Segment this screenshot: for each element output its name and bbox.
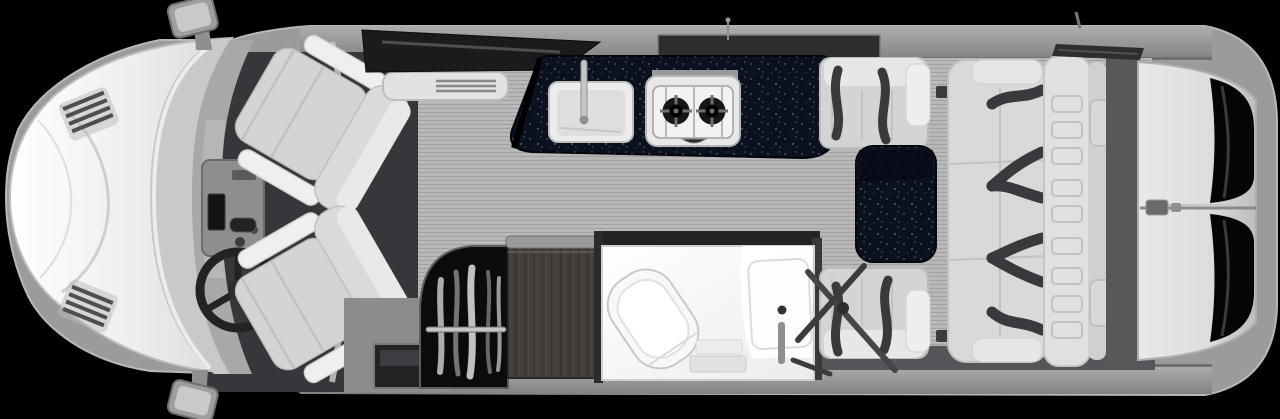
- pedestal-table: [856, 146, 936, 262]
- rear-dark-strip: [1106, 58, 1138, 364]
- dinette-armrest: [906, 290, 930, 352]
- cabinet-top-rail: [506, 236, 600, 248]
- bathroom: [594, 231, 822, 383]
- door-latch: [1146, 200, 1168, 215]
- infotainment-screen: [208, 194, 225, 230]
- sofa-backrest: [1044, 56, 1090, 366]
- hanging-closet: [420, 246, 508, 388]
- bathroom-top-wall: [598, 231, 820, 247]
- wood-cabinet: [506, 236, 600, 378]
- shower: [740, 246, 812, 364]
- faucet: [580, 60, 589, 125]
- dinette-seat-forward: [820, 58, 930, 148]
- shower-column: [778, 322, 785, 364]
- floorplan-stage: Class B motorhome floor plan - top-down …: [0, 0, 1280, 419]
- sofa-bumper-bottom: [972, 338, 1042, 362]
- bath-shelf: [690, 340, 746, 372]
- shower-control: [778, 306, 787, 315]
- table-top-shade: [859, 150, 933, 182]
- dinette-armrest: [906, 64, 930, 126]
- rear-sofa: [936, 56, 1124, 366]
- rv-floorplan-rendering: Class B motorhome floor plan - top-down …: [0, 0, 1280, 419]
- sofa-bumper-top: [972, 60, 1042, 84]
- wardrobe: [420, 236, 600, 388]
- clothes-rod: [426, 327, 506, 332]
- two-burner-cooktop: [646, 70, 740, 146]
- gear-selector: [230, 218, 256, 232]
